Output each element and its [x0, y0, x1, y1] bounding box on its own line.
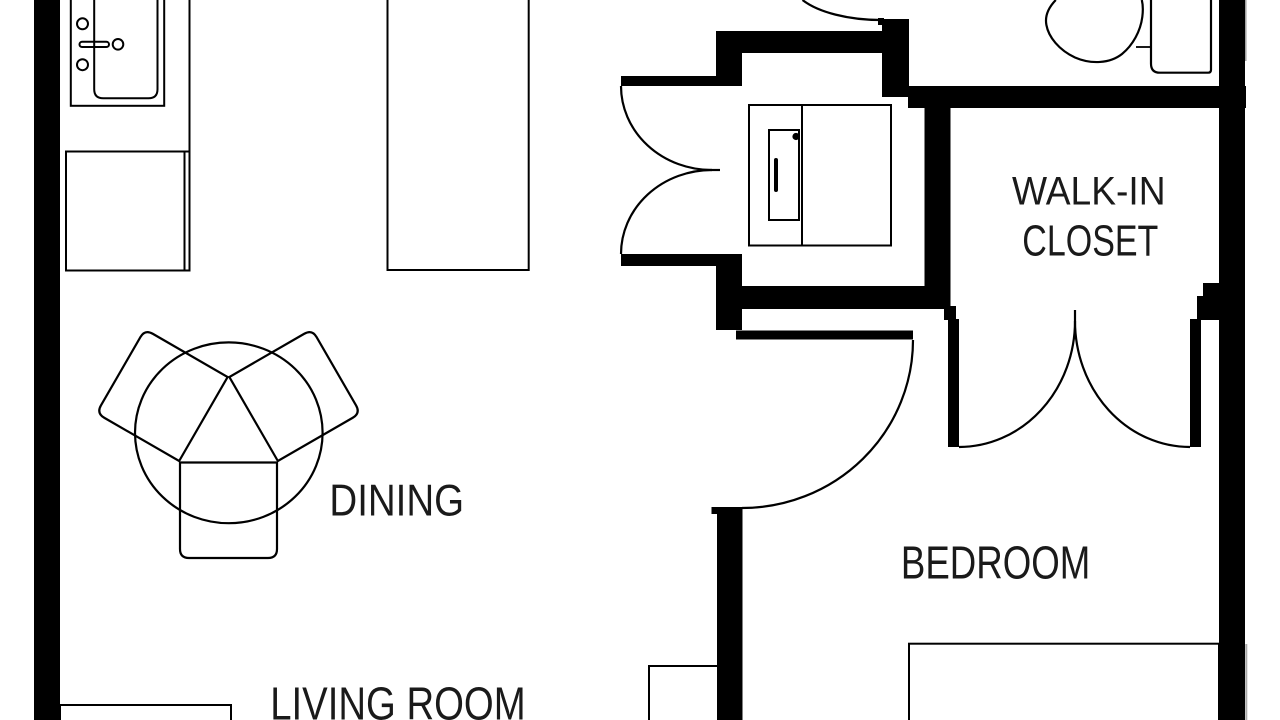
svg-text:DINING: DINING	[329, 475, 464, 525]
svg-text:LIVING ROOM: LIVING ROOM	[270, 678, 525, 720]
svg-text:WALK-IN: WALK-IN	[1012, 169, 1166, 214]
svg-text:CLOSET: CLOSET	[1022, 216, 1158, 265]
svg-text:BEDROOM: BEDROOM	[901, 536, 1090, 588]
